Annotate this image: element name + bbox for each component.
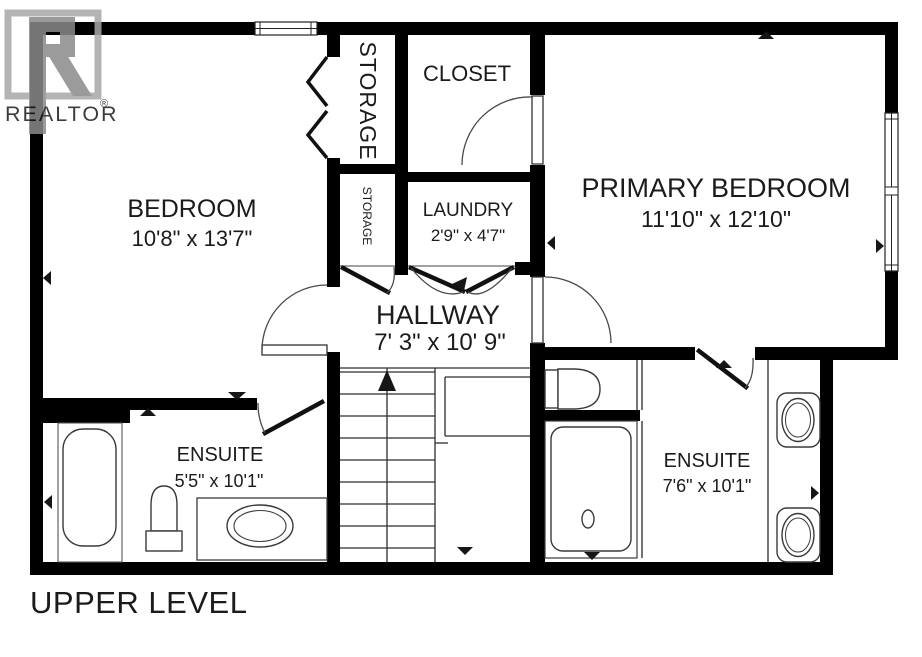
door-leaf bbox=[265, 402, 322, 433]
wall-segment bbox=[530, 35, 545, 95]
room-label-hallway: HALLWAY bbox=[376, 300, 500, 330]
dimension-arrow bbox=[584, 552, 600, 560]
sink-basin bbox=[227, 505, 293, 547]
dimension-arrow bbox=[811, 486, 819, 500]
room-label-storage-large: STORAGE bbox=[355, 41, 381, 160]
door-bedroom bbox=[262, 285, 327, 355]
wall-segment bbox=[530, 343, 545, 575]
door-hall-storage bbox=[340, 266, 395, 293]
door-leaf bbox=[468, 268, 512, 291]
room-label-storage-small: STORAGE bbox=[360, 187, 374, 245]
room-dims-ensuite-right: 7'6" x 10'1" bbox=[663, 476, 752, 496]
room-dims-ensuite-left: 5'5" x 10'1" bbox=[175, 471, 264, 491]
dimension-arrow bbox=[876, 239, 884, 253]
dimension-arrow bbox=[457, 547, 473, 555]
wall-segment bbox=[43, 398, 130, 423]
room-labels: BEDROOM 10'8" x 13'7" PRIMARY BEDROOM 11… bbox=[127, 41, 850, 496]
room-label-ensuite-right: ENSUITE bbox=[664, 450, 751, 472]
door-swing-arc bbox=[262, 285, 327, 350]
door-swing-arc bbox=[745, 358, 753, 388]
wall-segment bbox=[755, 347, 898, 360]
dimension-arrow bbox=[44, 495, 52, 509]
shower-drain bbox=[582, 510, 594, 528]
wc-partition bbox=[637, 360, 642, 410]
door-swing-arc bbox=[545, 277, 611, 343]
wall-segment bbox=[515, 262, 530, 275]
wall-segment bbox=[530, 165, 545, 277]
room-label-primary: PRIMARY BEDROOM bbox=[581, 173, 850, 203]
room-dims-bedroom: 10'8" x 13'7" bbox=[132, 226, 253, 251]
door-leaf bbox=[343, 268, 388, 292]
door-leaf bbox=[699, 351, 746, 387]
room-label-laundry: LAUNDRY bbox=[423, 200, 514, 221]
stairwell-void bbox=[435, 377, 530, 443]
bifold-door-bedroom-storage bbox=[308, 57, 327, 158]
room-label-bedroom: BEDROOM bbox=[127, 195, 256, 223]
wall-segment bbox=[530, 347, 695, 360]
room-dims-laundry: 2'9" x 4'7" bbox=[431, 226, 505, 245]
stairs bbox=[340, 368, 530, 562]
wall-segment bbox=[885, 271, 898, 360]
dimension-arrow bbox=[43, 271, 51, 285]
floorplan-page: BEDROOM 10'8" x 13'7" PRIMARY BEDROOM 11… bbox=[0, 0, 922, 657]
window-top bbox=[255, 22, 317, 35]
room-dims-hallway: 7' 3" x 10' 9" bbox=[374, 329, 506, 356]
room-label-ensuite-left: ENSUITE bbox=[177, 444, 264, 466]
door-swing-arc bbox=[258, 403, 265, 433]
level-title: UPPER LEVEL bbox=[30, 585, 247, 620]
vanity-counter bbox=[768, 360, 820, 562]
wall-segment bbox=[327, 352, 340, 562]
dimension-arrows bbox=[43, 31, 884, 560]
door-ensuite-left bbox=[258, 402, 322, 433]
wall-segment bbox=[30, 562, 833, 575]
room-label-closet: CLOSET bbox=[423, 61, 511, 86]
wall-segment bbox=[545, 410, 640, 421]
door-swing-arc bbox=[462, 97, 533, 165]
wall-segment bbox=[405, 172, 545, 182]
bifold-door-laundry bbox=[408, 266, 515, 294]
room-dims-primary: 11'10" x 12'10" bbox=[641, 206, 791, 232]
wall-segment bbox=[317, 22, 898, 35]
door-leaf bbox=[411, 268, 463, 291]
wall-segment bbox=[885, 22, 898, 113]
wall-segment bbox=[820, 352, 833, 575]
wall-segment bbox=[327, 158, 340, 287]
wall-segment bbox=[327, 35, 340, 57]
toilet bbox=[146, 486, 182, 551]
door-swing-arc bbox=[387, 267, 394, 293]
realtor-registered-mark: ® bbox=[100, 98, 108, 110]
windows bbox=[255, 22, 898, 271]
wall-segment bbox=[340, 164, 395, 174]
toilet bbox=[545, 369, 600, 409]
shower bbox=[545, 421, 642, 558]
stairs-up-arrow bbox=[378, 370, 396, 391]
dimension-arrow bbox=[547, 236, 555, 250]
door-closet bbox=[462, 96, 543, 165]
wall-segment bbox=[395, 35, 408, 275]
window-right bbox=[885, 113, 898, 271]
bathtub bbox=[58, 423, 122, 562]
door-ensuite-right bbox=[699, 351, 753, 388]
vanity-counter bbox=[197, 498, 327, 560]
floorplan-svg: BEDROOM 10'8" x 13'7" PRIMARY BEDROOM 11… bbox=[0, 0, 922, 657]
door-primary-bedroom bbox=[532, 277, 611, 343]
